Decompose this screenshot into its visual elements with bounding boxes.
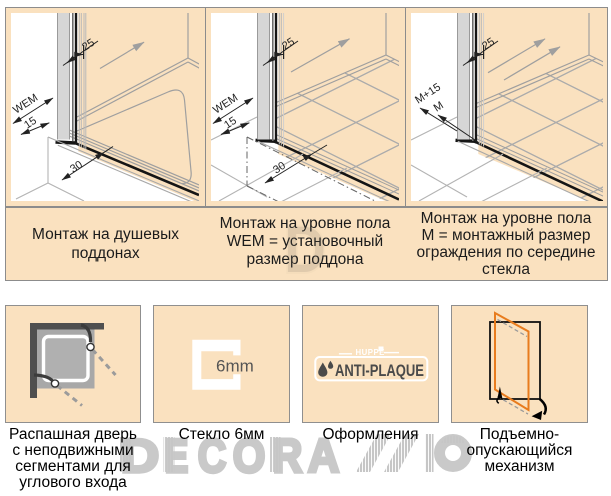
svg-text:6mm: 6mm xyxy=(216,357,254,376)
svg-text:ANTI-PLAQUE: ANTI-PLAQUE xyxy=(335,362,424,380)
svg-text:HUPPE: HUPPE xyxy=(356,348,385,357)
svg-text:D: D xyxy=(284,212,326,286)
